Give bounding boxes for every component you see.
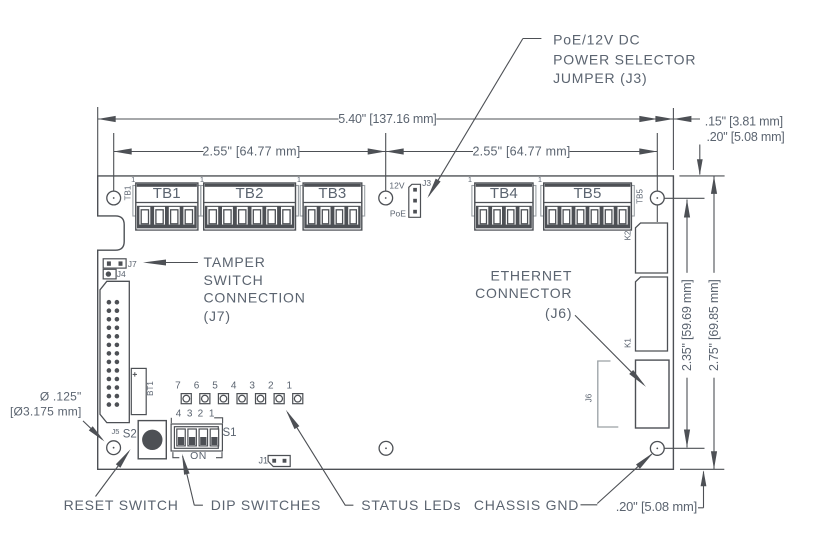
svg-text:RESET SWITCH: RESET SWITCH (64, 497, 179, 513)
svg-text:[Ø3.175 mm]: [Ø3.175 mm] (10, 404, 82, 418)
svg-text:K2: K2 (624, 230, 633, 240)
svg-text:(J7): (J7) (204, 308, 231, 324)
svg-text:TB3: TB3 (318, 185, 346, 202)
svg-text:J6: J6 (584, 393, 593, 402)
svg-text:1: 1 (468, 175, 472, 184)
svg-text:1: 1 (287, 381, 293, 392)
svg-text:DIP SWITCHES: DIP SWITCHES (211, 497, 321, 513)
svg-text:PoE: PoE (390, 208, 406, 218)
svg-text:.20" [5.08 mm]: .20" [5.08 mm] (616, 499, 697, 514)
svg-text:2: 2 (198, 408, 204, 419)
svg-text:2.35" [59.69 mm]: 2.35" [59.69 mm] (680, 279, 694, 371)
svg-text:CHASSIS GND: CHASSIS GND (474, 497, 579, 513)
svg-text:CONNECTOR: CONNECTOR (475, 285, 572, 301)
svg-text:1: 1 (209, 408, 215, 419)
svg-text:4: 4 (231, 381, 237, 392)
svg-text:TB4: TB4 (490, 185, 518, 202)
svg-text:5: 5 (212, 381, 218, 392)
svg-text:2: 2 (268, 381, 274, 392)
svg-text:POWER SELECTOR: POWER SELECTOR (553, 51, 696, 67)
svg-text:JUMPER (J3): JUMPER (J3) (553, 70, 647, 86)
svg-text:J5: J5 (111, 427, 119, 436)
svg-text:BT1: BT1 (146, 381, 155, 396)
svg-text:CONNECTION: CONNECTION (204, 290, 306, 306)
svg-text:1: 1 (538, 175, 542, 184)
svg-text:TB1: TB1 (124, 185, 133, 200)
svg-text:2.55" [64.77 mm]: 2.55" [64.77 mm] (473, 145, 571, 159)
svg-text:J4: J4 (117, 269, 126, 279)
svg-text:SWITCH: SWITCH (204, 272, 264, 288)
svg-text:2.75" [69.85 mm]: 2.75" [69.85 mm] (707, 279, 721, 371)
svg-text:STATUS LEDs: STATUS LEDs (361, 497, 461, 513)
svg-text:1: 1 (297, 175, 301, 184)
svg-text:K1: K1 (624, 338, 633, 348)
svg-text:ON: ON (190, 450, 207, 462)
svg-text:1: 1 (200, 175, 204, 184)
svg-text:TAMPER: TAMPER (204, 254, 266, 270)
svg-text:TB5: TB5 (636, 189, 645, 204)
svg-text:3: 3 (187, 408, 193, 419)
svg-text:J7: J7 (128, 259, 137, 269)
svg-text:TB5: TB5 (573, 185, 601, 202)
svg-text:4: 4 (176, 408, 182, 419)
svg-text:ETHERNET: ETHERNET (490, 268, 572, 284)
svg-text:6: 6 (194, 381, 200, 392)
svg-text:PoE/12V DC: PoE/12V DC (553, 32, 640, 48)
svg-text:2.55" [64.77 mm]: 2.55" [64.77 mm] (202, 145, 300, 159)
svg-text:TB1: TB1 (153, 185, 181, 202)
svg-text:(J6): (J6) (545, 305, 572, 321)
svg-text:S2: S2 (123, 428, 137, 440)
svg-text:J3: J3 (422, 178, 431, 188)
svg-text:.15" [3.81 mm]: .15" [3.81 mm] (705, 114, 783, 128)
svg-text:S1: S1 (222, 427, 236, 439)
svg-text:Ø .125": Ø .125" (40, 390, 82, 404)
svg-text:1: 1 (131, 175, 135, 184)
svg-text:.20" [5.08 mm]: .20" [5.08 mm] (707, 130, 785, 144)
svg-text:7: 7 (175, 381, 181, 392)
svg-text:3: 3 (249, 381, 255, 392)
svg-text:TB2: TB2 (236, 185, 264, 202)
svg-text:J1: J1 (258, 455, 268, 465)
svg-text:12V: 12V (389, 180, 404, 190)
svg-text:5.40" [137.16 mm]: 5.40" [137.16 mm] (338, 112, 436, 126)
